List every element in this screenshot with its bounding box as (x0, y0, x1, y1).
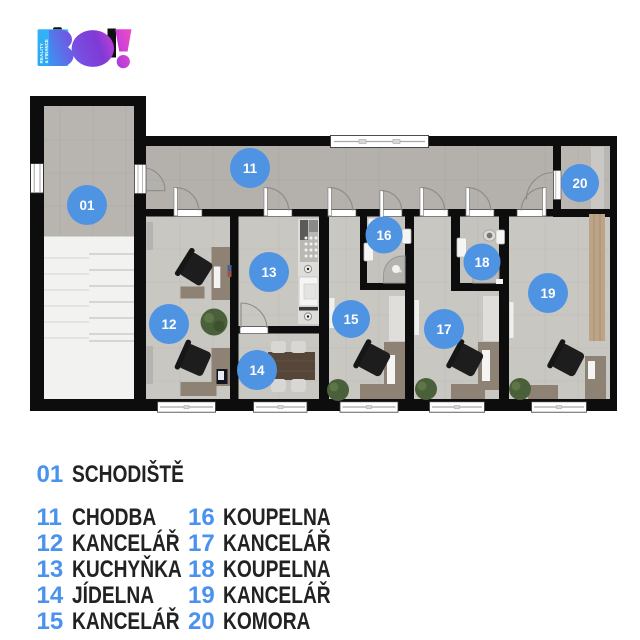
svg-text:KUCHYŇKA: KUCHYŇKA (72, 555, 182, 583)
svg-text:17: 17 (188, 530, 215, 557)
svg-text:14: 14 (249, 363, 265, 378)
svg-text:01: 01 (79, 198, 95, 213)
svg-text:11: 11 (243, 161, 258, 176)
svg-text:12: 12 (37, 530, 64, 557)
svg-text:18: 18 (188, 556, 215, 583)
svg-text:11: 11 (37, 504, 62, 531)
svg-text:KOUPELNA: KOUPELNA (223, 555, 331, 583)
svg-text:12: 12 (161, 317, 176, 332)
svg-text:20: 20 (572, 176, 587, 191)
svg-text:14: 14 (37, 582, 64, 609)
svg-text:KOMORA: KOMORA (223, 607, 311, 635)
svg-text:16: 16 (188, 504, 215, 531)
svg-text:15: 15 (343, 312, 359, 327)
svg-text:19: 19 (540, 286, 555, 301)
svg-text:JÍDELNA: JÍDELNA (72, 581, 154, 609)
svg-text:KOUPELNA: KOUPELNA (223, 503, 331, 531)
svg-text:CHODBA: CHODBA (72, 503, 156, 531)
svg-text:13: 13 (37, 556, 64, 583)
svg-text:SCHODIŠTĚ: SCHODIŠTĚ (72, 460, 184, 488)
svg-text:13: 13 (261, 265, 277, 280)
svg-text:19: 19 (188, 582, 215, 609)
svg-text:18: 18 (474, 255, 490, 270)
svg-text:KANCELÁŘ: KANCELÁŘ (223, 529, 331, 557)
svg-text:KANCELÁŘ: KANCELÁŘ (223, 581, 331, 609)
svg-text:15: 15 (37, 608, 64, 635)
svg-text:17: 17 (436, 322, 451, 337)
svg-text:20: 20 (188, 608, 215, 635)
svg-text:KANCELÁŘ: KANCELÁŘ (72, 607, 180, 635)
svg-text:01: 01 (37, 461, 64, 488)
svg-text:& FINANCE: & FINANCE (44, 39, 49, 63)
svg-text:KANCELÁŘ: KANCELÁŘ (72, 529, 180, 557)
svg-text:16: 16 (376, 228, 392, 243)
